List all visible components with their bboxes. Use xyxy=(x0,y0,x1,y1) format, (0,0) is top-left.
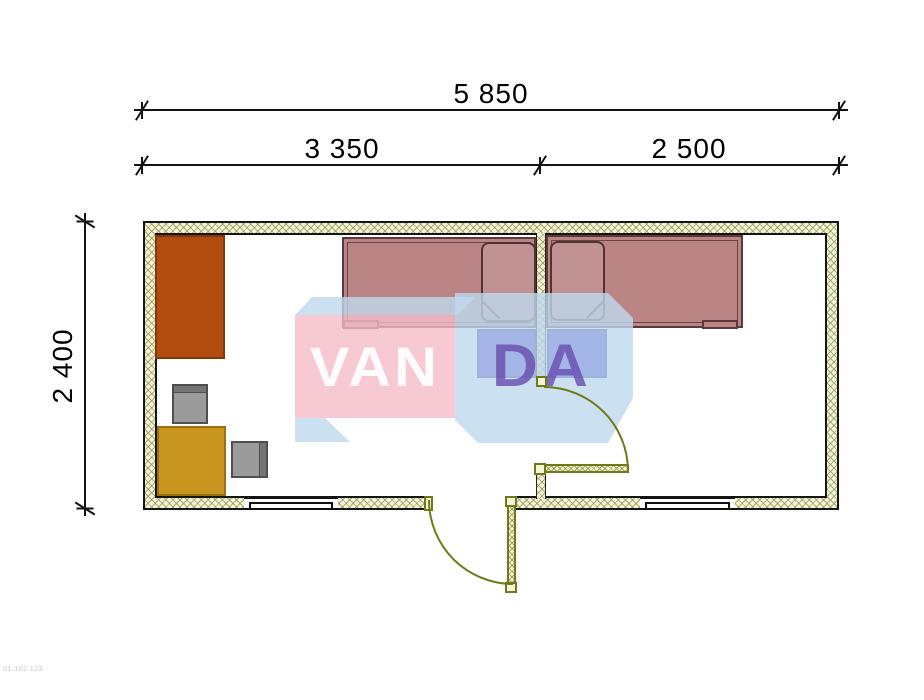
watermark-top-face xyxy=(295,297,475,315)
window-left xyxy=(244,497,338,510)
floor-plan-canvas: 5 850 3 350 2 500 2 400 xyxy=(0,0,924,700)
dim-line-total-width xyxy=(134,109,848,111)
dim-label-total-width: 5 850 xyxy=(391,78,591,110)
window-right xyxy=(640,497,735,510)
watermark-text-van: VAN xyxy=(290,315,460,418)
dim-label-left-section: 3 350 xyxy=(242,133,442,165)
partition-wall-stub xyxy=(536,472,546,499)
dim-line-sections xyxy=(134,164,848,166)
wardrobe xyxy=(155,235,225,359)
table xyxy=(157,426,226,496)
dim-label-right-section: 2 500 xyxy=(589,133,789,165)
watermark-text-da: DA xyxy=(457,322,627,408)
side-chair xyxy=(231,441,268,478)
dim-line-height xyxy=(84,213,86,516)
desk-chair xyxy=(172,384,208,424)
dim-label-height: 2 400 xyxy=(47,266,79,466)
bed-right-footboard xyxy=(702,320,738,329)
entrance-door-swing-arc xyxy=(428,500,513,585)
corner-code: 01.102.123 xyxy=(3,666,43,673)
